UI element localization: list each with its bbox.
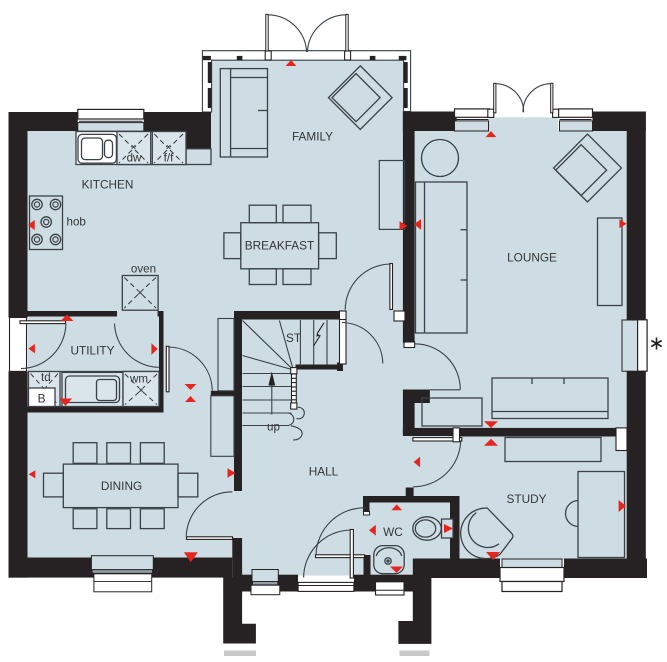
svg-text:STUDY: STUDY	[507, 492, 547, 506]
svg-text:UTILITY: UTILITY	[71, 344, 115, 358]
svg-text:B: B	[38, 392, 46, 406]
svg-text:up: up	[267, 421, 280, 434]
svg-text:dw: dw	[127, 152, 142, 165]
svg-text:DINING: DINING	[101, 479, 142, 493]
svg-text:BREAKFAST: BREAKFAST	[245, 239, 315, 253]
svg-text:hob: hob	[67, 216, 86, 229]
svg-text:f/f: f/f	[164, 152, 174, 165]
svg-text:td: td	[41, 371, 51, 384]
svg-text:wm: wm	[129, 373, 148, 386]
svg-text:FAMILY: FAMILY	[292, 130, 333, 144]
svg-text:LOUNGE: LOUNGE	[507, 251, 557, 265]
svg-text:oven: oven	[131, 263, 156, 276]
svg-text:WC: WC	[383, 525, 403, 539]
svg-text:HALL: HALL	[309, 465, 339, 479]
svg-text:KITCHEN: KITCHEN	[82, 178, 134, 192]
svg-text:ST: ST	[286, 331, 301, 345]
